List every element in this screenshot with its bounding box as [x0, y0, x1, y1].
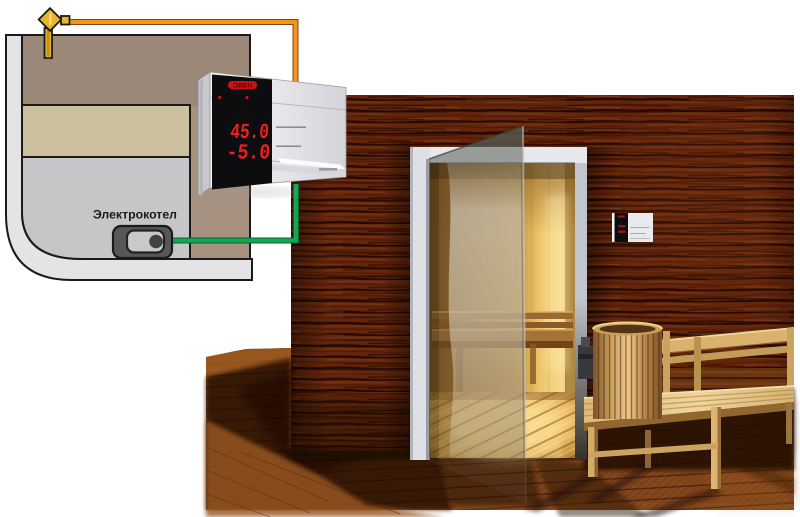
- svg-text:Электрокотел: Электрокотел: [93, 208, 177, 222]
- svg-text:-5.0: -5.0: [226, 142, 272, 166]
- svg-text:ОВЕН: ОВЕН: [233, 83, 253, 90]
